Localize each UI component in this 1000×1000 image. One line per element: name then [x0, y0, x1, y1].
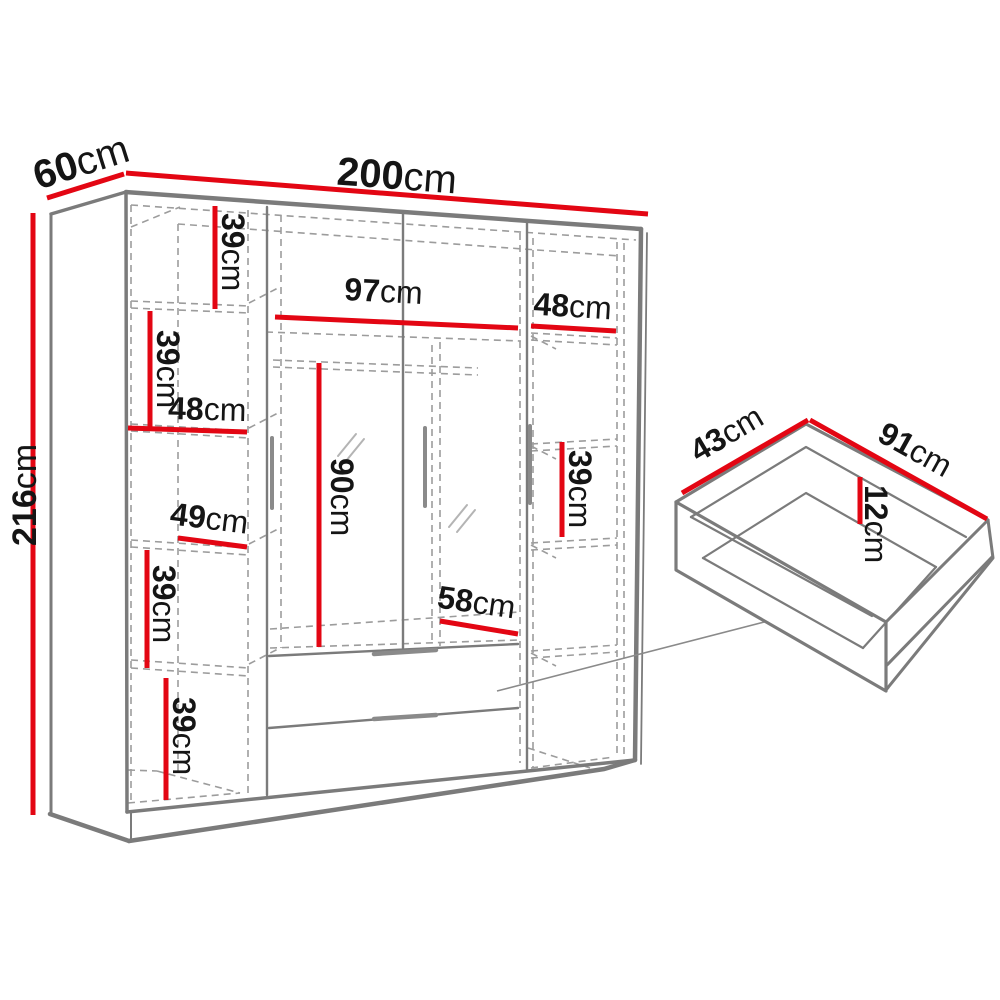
left-shelf1-front-dashed: [131, 301, 249, 306]
dim-middle-width97-label: 97cm: [344, 271, 424, 311]
dim-left-shelf1-label: 39cm: [215, 213, 251, 291]
dim-left-width49-label: 49cm: [168, 495, 250, 540]
middle-shelf-bottom-dashed: [273, 367, 478, 375]
left-panel-bottom-edge: [50, 814, 129, 841]
wardrobe-dimension-diagram: 60cm 200cm 216cm 39cm 39cm 48cm 49cm 39c…: [0, 0, 1000, 1000]
left-shelf4-bottom-dashed: [131, 668, 249, 676]
left-shelf1-diagonal-dashed: [249, 288, 278, 303]
front-right-edge: [635, 229, 641, 760]
right-shelf3-bottom-dashed: [531, 545, 617, 550]
dim-height-label: 216cm: [6, 444, 44, 546]
dim-width-label: 200cm: [335, 150, 458, 203]
dim-drawer-height12-label: 12cm: [858, 485, 894, 563]
left-shelf3-diagonal-dashed: [249, 529, 278, 544]
dim-line-middle-width-97: [275, 317, 518, 328]
left-floor-back-dashed: [128, 770, 157, 771]
drawer-front-panel: [676, 502, 886, 691]
dim-left-width48-label: 48cm: [168, 390, 247, 428]
left-shelf2-diagonal-dashed: [249, 413, 278, 428]
plinth-bottom-edge: [129, 760, 635, 841]
drawer-leader-line: [497, 621, 768, 691]
dim-left-shelf3-label: 39cm: [146, 565, 182, 643]
interior-top-diagonal-dashed: [131, 207, 180, 227]
dim-hanging90-label: 90cm: [324, 458, 360, 536]
right-shelf4-front-dashed: [531, 645, 617, 651]
dim-right-shelf39-label: 39cm: [562, 450, 598, 528]
right-shelf2-diagonal-dashed: [531, 446, 556, 459]
right-shelf4-diagonal-dashed: [531, 653, 556, 666]
right-shelf3-front-dashed: [531, 538, 617, 543]
diagram-canvas: 60cm 200cm 216cm 39cm 39cm 48cm 49cm 39c…: [0, 0, 1000, 1000]
dim-right-width48-label: 48cm: [533, 286, 613, 327]
right-shelf1-front-dashed: [531, 333, 617, 338]
middle-top-shelf-dashed: [266, 332, 521, 341]
middle-shelf-front-dashed: [273, 360, 478, 368]
dim-drawer-depth43-label: 43cm: [684, 398, 770, 469]
dim-drawer-width91-label: 91cm: [872, 415, 958, 484]
right-shelf4-bottom-dashed: [531, 652, 617, 658]
dim-bottom58-label: 58cm: [435, 579, 517, 626]
drawer-handle-bottom: [374, 715, 436, 719]
right-shelf1-diagonal-dashed: [531, 336, 556, 349]
right-shelf2-front-dashed: [531, 439, 617, 444]
right-shelf3-diagonal-dashed: [531, 545, 556, 558]
front-left-edge: [126, 192, 127, 812]
dim-left-shelf4-label: 39cm: [166, 697, 202, 775]
dim-line-right-width-48: [531, 326, 616, 331]
